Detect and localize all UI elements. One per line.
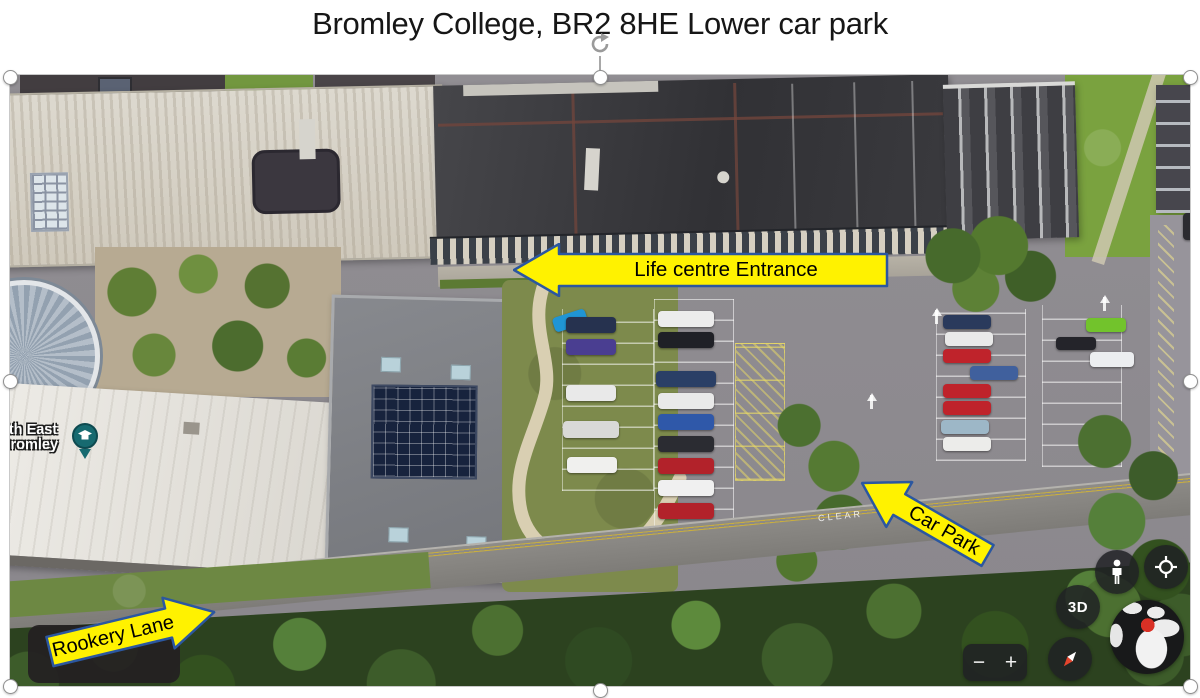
- look-around-button[interactable]: [1144, 545, 1188, 589]
- parked-car: [658, 311, 714, 327]
- compass-button[interactable]: [1048, 637, 1092, 681]
- parked-car: [1056, 337, 1096, 350]
- parked-car: [656, 371, 716, 387]
- parked-car: [945, 332, 993, 346]
- look-around-target-icon: [1154, 555, 1178, 579]
- parked-car: [943, 315, 991, 329]
- compass-needle-icon: [1059, 648, 1081, 670]
- pegman-icon: [1108, 559, 1126, 585]
- selection-handle-mid-left[interactable]: [3, 374, 18, 389]
- life-centre-entrance-arrow[interactable]: Life centre Entrance: [513, 243, 889, 297]
- selection-handle-bottom-center[interactable]: [593, 683, 608, 698]
- map-image[interactable]: CLEAR uth East Bromley Life centre Entra…: [10, 75, 1190, 686]
- parked-car: [658, 414, 714, 430]
- zoom-in-button[interactable]: +: [995, 644, 1027, 681]
- graduation-cap-pin-icon: [72, 423, 98, 449]
- parked-car: [658, 458, 714, 474]
- parked-car: [941, 420, 989, 434]
- parked-car: [943, 401, 991, 415]
- 3d-button[interactable]: 3D: [1056, 585, 1100, 629]
- parked-car: [943, 437, 991, 451]
- 3d-label: 3D: [1068, 599, 1088, 616]
- pegman-button[interactable]: [1095, 550, 1139, 594]
- selection-handle-top-right[interactable]: [1183, 70, 1198, 85]
- parked-car: [566, 339, 616, 355]
- selection-handle-top-center[interactable]: [593, 70, 608, 85]
- painted-arrow: [935, 310, 938, 324]
- parked-car: [1086, 318, 1126, 332]
- parked-car: [658, 393, 714, 409]
- earth-globe-icon[interactable]: [1110, 600, 1184, 674]
- zoom-out-button[interactable]: −: [963, 644, 995, 681]
- pin-pointer: [79, 449, 91, 459]
- selection-handle-top-left[interactable]: [3, 70, 18, 85]
- parked-car: [566, 317, 616, 333]
- zoom-control[interactable]: − +: [963, 644, 1027, 681]
- selection-handle-mid-right[interactable]: [1183, 374, 1198, 389]
- parked-car: [943, 384, 991, 398]
- parked-car: [658, 480, 714, 496]
- parked-car: [566, 385, 616, 401]
- parked-car: [943, 349, 991, 363]
- parked-car: [658, 503, 714, 519]
- parked-car: [1090, 352, 1134, 367]
- selection-handle-bottom-left[interactable]: [3, 679, 18, 694]
- parked-car: [658, 332, 714, 348]
- parked-car: [658, 436, 714, 452]
- place-pin[interactable]: [72, 423, 98, 459]
- parked-car: [567, 457, 617, 473]
- rotate-handle-icon[interactable]: [587, 31, 613, 62]
- parked-car: [970, 366, 1018, 380]
- selection-handle-bottom-right[interactable]: [1183, 679, 1198, 694]
- place-label: uth East Bromley: [10, 423, 58, 453]
- life-centre-entrance-label: Life centre Entrance: [573, 243, 879, 297]
- painted-arrow: [1103, 297, 1106, 311]
- parked-car: [563, 421, 619, 438]
